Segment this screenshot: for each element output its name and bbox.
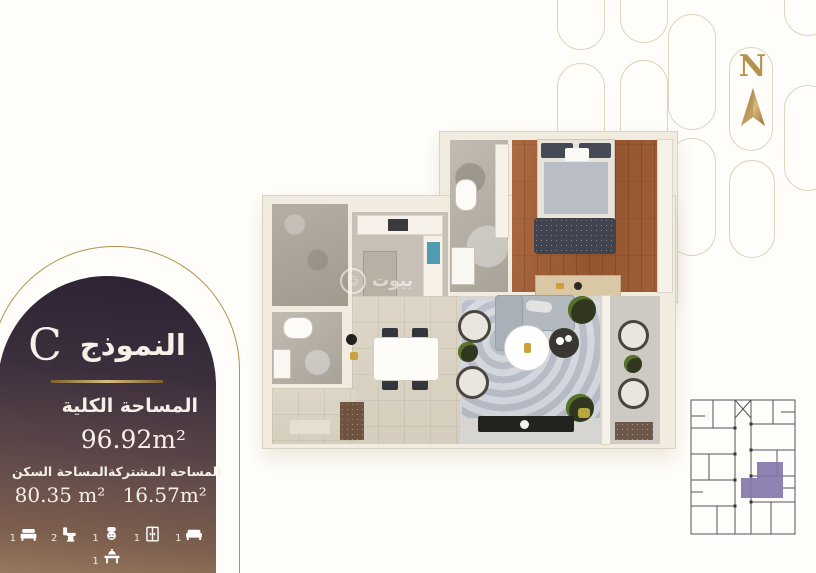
bed xyxy=(538,140,614,218)
side-table-decor xyxy=(565,335,572,342)
total-area-value: 96.92m² xyxy=(0,417,216,454)
gold-decor xyxy=(350,352,358,360)
cooktop xyxy=(388,219,408,231)
toilet-2 xyxy=(284,318,312,338)
amenity-count: 1 xyxy=(92,533,98,544)
bed-icon xyxy=(19,525,38,544)
dresser-decor xyxy=(556,283,564,289)
corner-plant xyxy=(568,296,596,324)
total-area-label: المساحة الكلية xyxy=(0,393,216,417)
amenities-row: 1 2 1 xyxy=(0,525,216,544)
living-area-label: المساحة السكن xyxy=(12,464,108,479)
dresser-decor xyxy=(574,282,582,290)
balcony-chair xyxy=(618,378,649,409)
amenity-count: 2 xyxy=(51,533,57,544)
living-area: المساحة السكن 80.35 m² xyxy=(12,464,108,507)
entry-mat xyxy=(340,402,364,440)
plant-table xyxy=(458,342,478,362)
balcony-mat xyxy=(615,422,653,440)
compass-arrow-icon xyxy=(736,86,770,130)
vase-decor xyxy=(346,334,357,345)
fridge xyxy=(427,242,440,264)
dresser xyxy=(536,276,620,296)
amenity-toilet: 2 xyxy=(51,525,79,544)
second-bedroom xyxy=(272,204,348,306)
sink-2 xyxy=(274,350,290,378)
model-title: C النموذج xyxy=(0,324,216,368)
flyer-page: N xyxy=(0,0,816,573)
living-area-value: 80.35 m² xyxy=(12,479,108,507)
bed-mattress xyxy=(544,162,608,214)
sofa-pillow xyxy=(525,300,552,314)
model-info-panel: C النموذج المساحة الكلية 96.92m² المساحة… xyxy=(0,276,216,573)
balcony-partition xyxy=(602,296,610,444)
armchair xyxy=(458,310,491,343)
side-table xyxy=(549,328,579,358)
sofa-icon xyxy=(184,525,204,544)
tv-console xyxy=(478,416,574,432)
amenity-sofa: 1 xyxy=(175,525,204,544)
model-letter: C xyxy=(28,324,62,368)
flower-decor xyxy=(578,408,590,418)
compass: N xyxy=(733,52,773,134)
wardrobe-icon xyxy=(143,525,162,544)
watermark-logo-icon: ☺ xyxy=(340,268,366,294)
bed-pillow xyxy=(565,148,589,161)
amenity-bed: 1 xyxy=(10,525,38,544)
armchair xyxy=(456,366,489,399)
dining-table-icon xyxy=(102,547,122,567)
shared-area-label: المساحة المشتركة xyxy=(108,464,222,479)
amenity-count: 1 xyxy=(175,533,181,544)
amenity-kitchen: 1 xyxy=(92,525,120,544)
bed-bench xyxy=(534,218,616,254)
amenity-count: 1 xyxy=(10,533,16,544)
hall-rug xyxy=(290,420,330,434)
amenity-count: 1 xyxy=(134,533,140,544)
tv-console-decor xyxy=(520,420,529,429)
gold-divider xyxy=(51,380,163,383)
amenity-wardrobe: 1 xyxy=(134,525,162,544)
building-key-plan xyxy=(683,392,803,542)
side-table-decor xyxy=(556,337,564,345)
compass-north-label: N xyxy=(733,52,773,82)
unit-highlight xyxy=(741,462,783,498)
coffee-table xyxy=(505,326,549,370)
amenities-row-2: 1 xyxy=(0,547,216,567)
coffee-table-decor xyxy=(524,343,531,353)
balcony-chair xyxy=(618,320,649,351)
shared-area: المساحة المشتركة 16.57m² xyxy=(108,464,222,507)
balcony-plant xyxy=(624,355,642,373)
watermark-text: بيوت xyxy=(372,271,413,291)
amenity-count: 1 xyxy=(92,556,98,567)
closet xyxy=(658,140,672,292)
toilet-icon xyxy=(60,525,79,544)
toilet xyxy=(456,180,476,210)
model-label: النموذج xyxy=(80,330,186,362)
kitchen-icon xyxy=(102,525,121,544)
watermark: ☺ بيوت xyxy=(340,268,413,294)
shared-area-value: 16.57m² xyxy=(108,479,222,507)
bathroom-cabinet xyxy=(496,145,508,237)
dining-table xyxy=(374,338,438,380)
amenity-dining-table: 1 xyxy=(92,547,121,567)
sink xyxy=(452,248,474,284)
